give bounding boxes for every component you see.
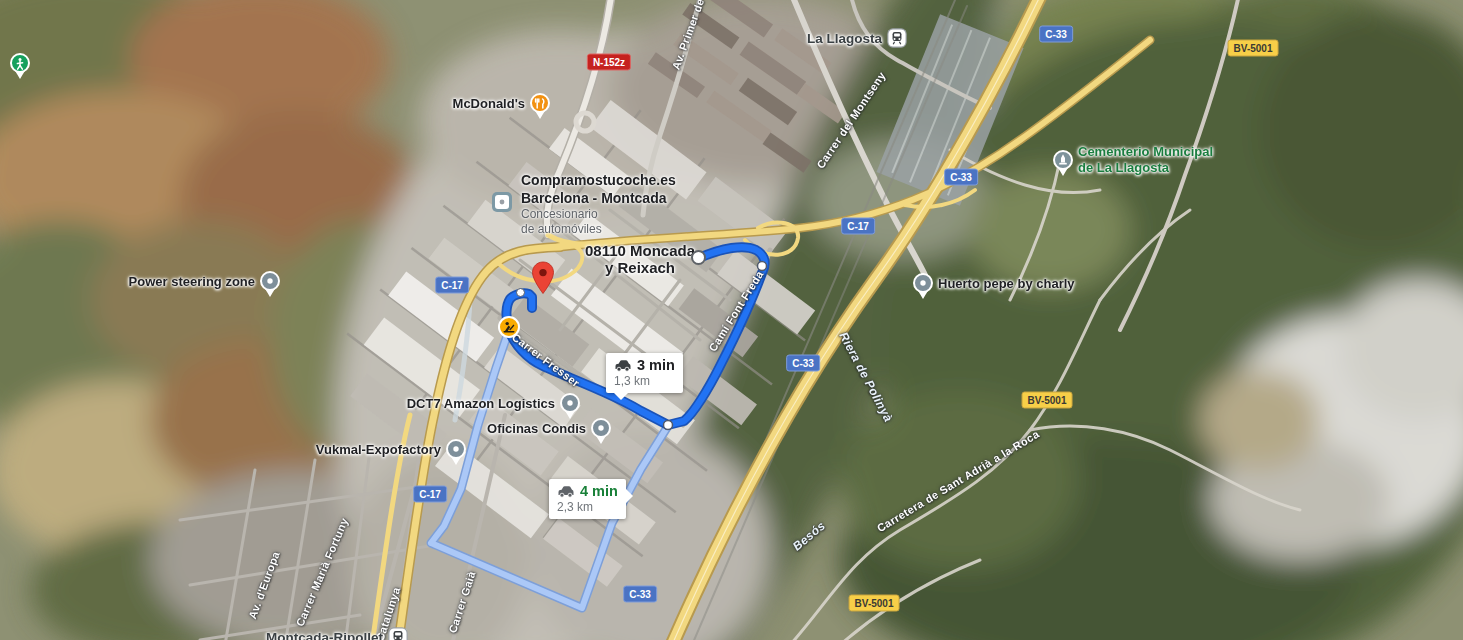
gray-dot-pin-icon[interactable]	[590, 417, 612, 445]
dealer-title-line2: Barcelona - Montcada	[521, 189, 676, 207]
alternative-route-tooltip[interactable]: 4 min 2,3 km	[549, 479, 626, 519]
hiker-icon[interactable]	[9, 52, 31, 80]
primary-route-tooltip[interactable]: 3 min 1,3 km	[606, 353, 683, 393]
poi-label[interactable]: Oficinas Condis	[487, 421, 586, 436]
car-icon	[557, 485, 575, 498]
primary-distance: 1,3 km	[614, 374, 675, 388]
poi-label[interactable]: Vukmal-Expofactory	[316, 442, 441, 457]
dealer-sub-line2: de automóviles	[521, 222, 676, 237]
route-start-circle[interactable]	[691, 250, 706, 265]
alternative-distance: 2,3 km	[557, 500, 618, 514]
car-dealer-icon[interactable]	[491, 191, 513, 213]
train-station-icon[interactable]	[887, 28, 907, 48]
poi-label[interactable]: McDonald's	[453, 96, 525, 111]
shield-c33-3: C-33	[786, 355, 820, 372]
shield-c17-2: C-17	[841, 218, 875, 235]
primary-duration: 3 min	[637, 357, 675, 373]
shield-c33-4: C-33	[623, 586, 657, 603]
car-icon	[614, 359, 632, 372]
destination-red-pin[interactable]	[531, 261, 555, 295]
shield-bv5001-2: BV-5001	[1022, 392, 1073, 409]
station-label[interactable]: La Llagosta	[807, 31, 882, 46]
station-label[interactable]: Montcada-Ripollet	[266, 630, 383, 640]
shield-n152z: N-152z	[587, 54, 631, 71]
dealer-sub-line1: Concesionario	[521, 207, 676, 222]
alternative-duration: 4 min	[580, 483, 618, 499]
destination-address-label[interactable]: 08110 Moncada y Reixach	[585, 242, 695, 276]
dealer-label-block[interactable]: Compramostucoche.es Barcelona - Montcada…	[521, 171, 676, 237]
gray-dot-pin-icon[interactable]	[912, 272, 934, 300]
shield-c17-1: C-17	[435, 277, 469, 294]
poi-label[interactable]: Huerto pepe by charly	[938, 276, 1075, 291]
roadworks-icon[interactable]	[497, 315, 521, 339]
gray-dot-pin-icon[interactable]	[259, 270, 281, 298]
train-station-icon[interactable]	[388, 627, 408, 640]
dealer-title-line1: Compramostucoche.es	[521, 171, 676, 189]
gray-dot-pin-icon[interactable]	[445, 438, 467, 466]
map-canvas[interactable]: Av. Primer de Carrer del Montseny Carrer…	[0, 0, 1463, 640]
shield-bv5001-3: BV-5001	[849, 595, 900, 612]
shield-bv5001-1: BV-5001	[1228, 40, 1279, 57]
poi-label[interactable]: Power steering zone	[129, 274, 255, 289]
gray-dot-pin-icon[interactable]	[559, 392, 581, 420]
memorial-icon[interactable]	[1052, 149, 1074, 177]
poi-label[interactable]: Cementerio Municipal de La Llagosta	[1078, 144, 1213, 176]
shield-c17-3: C-17	[413, 486, 447, 503]
shield-c33-1: C-33	[1039, 26, 1073, 43]
restaurant-icon[interactable]	[529, 92, 551, 120]
route-end-dot[interactable]	[516, 288, 525, 297]
tooltip-pointer	[626, 489, 633, 503]
shield-c33-2: C-33	[944, 169, 978, 186]
poi-label[interactable]: DCT7 Amazon Logistics	[407, 396, 555, 411]
tooltip-pointer	[614, 393, 628, 400]
